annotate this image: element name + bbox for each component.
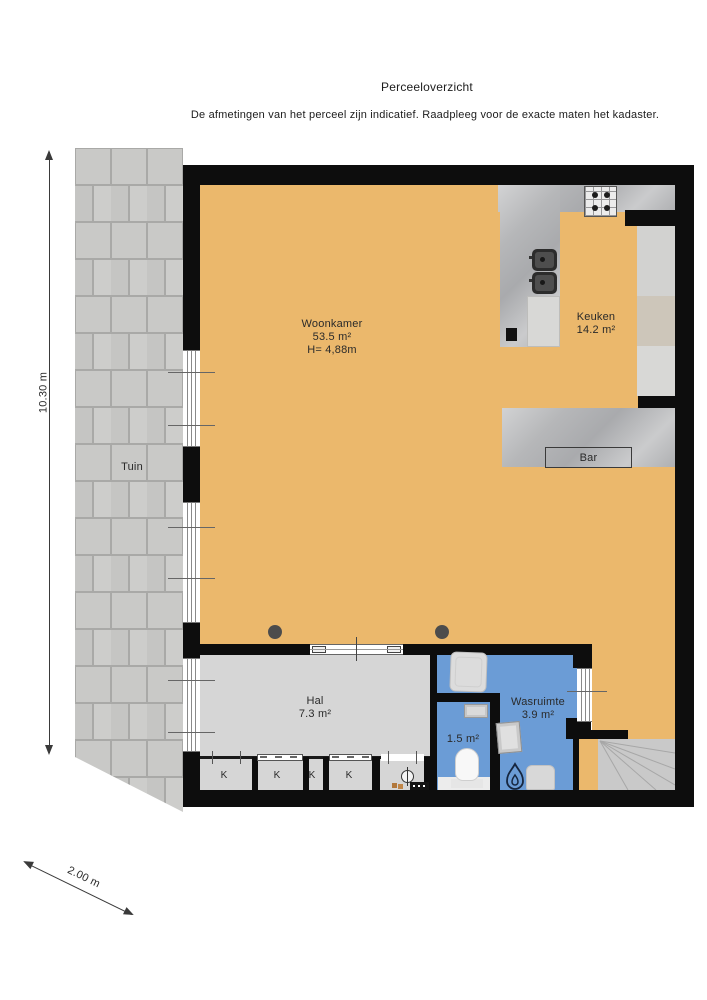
island-fixture: [506, 328, 517, 341]
closet-divider: [252, 757, 258, 790]
room-label-tuin: Tuin: [97, 461, 167, 474]
room-label-woonkamer: Woonkamer 53.5 m² H= 4,88m: [262, 318, 402, 357]
window: [183, 350, 200, 447]
room-name: Keuken: [546, 311, 646, 324]
room-label-bar: Bar: [546, 452, 631, 465]
room-area: 1.5 m²: [428, 733, 498, 746]
wall-segment: [573, 655, 592, 668]
garden-paving: [75, 148, 183, 812]
wall-segment: [638, 396, 675, 408]
floorplan-page: Perceeloverzicht De afmetingen van het p…: [0, 0, 707, 1000]
closet-divider: [372, 757, 380, 790]
cabinet-section: [637, 346, 675, 396]
dimension-bottom-label: 2.00 m: [27, 846, 140, 910]
page-disclaimer: De afmetingen van het perceel zijn indic…: [145, 109, 705, 122]
fuse-panel: [410, 782, 429, 790]
wall-hal-toilet: [430, 655, 437, 790]
window-tick: [168, 732, 215, 733]
wall-bottom: [183, 790, 694, 807]
wall-left-segment: [183, 752, 200, 807]
laundry-sink-icon: [496, 721, 523, 754]
sink-icon: [532, 272, 557, 294]
wall-left-segment: [183, 623, 200, 658]
pillar: [435, 625, 449, 639]
window-tick: [168, 372, 215, 373]
door-tick: [240, 751, 241, 764]
wall-stair: [573, 739, 579, 790]
electric-meter-line: [407, 767, 408, 786]
room-label-hal: Hal 7.3 m²: [265, 695, 365, 721]
wall-left-segment: [183, 447, 200, 502]
dimension-bottom: 2.00 m: [25, 862, 132, 915]
room-height: H= 4,88m: [262, 344, 402, 357]
window-tick: [168, 680, 215, 681]
sink-icon: [532, 249, 557, 271]
pillar: [268, 625, 282, 639]
page-title: Perceeloverzicht: [147, 81, 707, 94]
wall-stair: [576, 730, 628, 739]
closet-label: K: [262, 770, 292, 782]
meter-fixture: [392, 783, 397, 788]
room-area: 3.9 m²: [488, 709, 588, 722]
meter-fixture: [398, 784, 403, 789]
door-tick: [416, 751, 417, 764]
hand-sink-icon: [464, 704, 488, 718]
dryer-icon: [526, 765, 555, 790]
window-tick: [168, 578, 215, 579]
wall-right: [675, 165, 694, 807]
dimension-side-label: 10.30 m: [38, 362, 51, 424]
laundry-sink-basin: [500, 725, 518, 749]
window: [183, 658, 200, 752]
window: [183, 502, 200, 623]
closet-label: K: [297, 770, 327, 782]
closet-sliding-door: [257, 754, 303, 761]
toilet-icon: [455, 748, 479, 781]
hand-sink-basin: [467, 707, 485, 715]
stairs: [598, 739, 675, 790]
closet-label: K: [334, 770, 364, 782]
wall-segment: [625, 210, 675, 226]
arrow-down-icon: [45, 745, 53, 755]
washing-machine-lid: [454, 657, 482, 688]
door-tick: [212, 751, 213, 764]
room-area: 53.5 m²: [262, 331, 402, 344]
room-name: Wasruimte: [488, 696, 588, 709]
washing-machine-icon: [449, 651, 487, 692]
window-tick: [567, 691, 607, 692]
window-tick: [168, 425, 215, 426]
room-label-toilet: 1.5 m²: [428, 733, 498, 746]
bar-outline: Bar: [545, 447, 632, 468]
door-tick: [356, 637, 357, 661]
room-label-wasruimte: Wasruimte 3.9 m²: [488, 696, 588, 722]
closet-label: K: [209, 770, 239, 782]
wall-top: [183, 165, 694, 185]
room-area: 7.3 m²: [265, 708, 365, 721]
room-label-keuken: Keuken 14.2 m²: [546, 311, 646, 337]
dimension-line: [49, 152, 50, 753]
boiler-flame-icon: [502, 762, 528, 792]
window-tick: [168, 527, 215, 528]
wall-hal-top: [403, 644, 592, 655]
floor-stair-landing: [579, 739, 598, 790]
arrow-up-icon: [45, 150, 53, 160]
wall-hal-top: [200, 644, 310, 655]
room-name: Woonkamer: [262, 318, 402, 331]
closet-sliding-door: [329, 754, 372, 761]
wall-left-segment: [183, 165, 200, 350]
room-area: 14.2 m²: [546, 324, 646, 337]
stove-icon: [584, 186, 617, 217]
door-tick: [388, 751, 389, 764]
room-name: Hal: [265, 695, 365, 708]
